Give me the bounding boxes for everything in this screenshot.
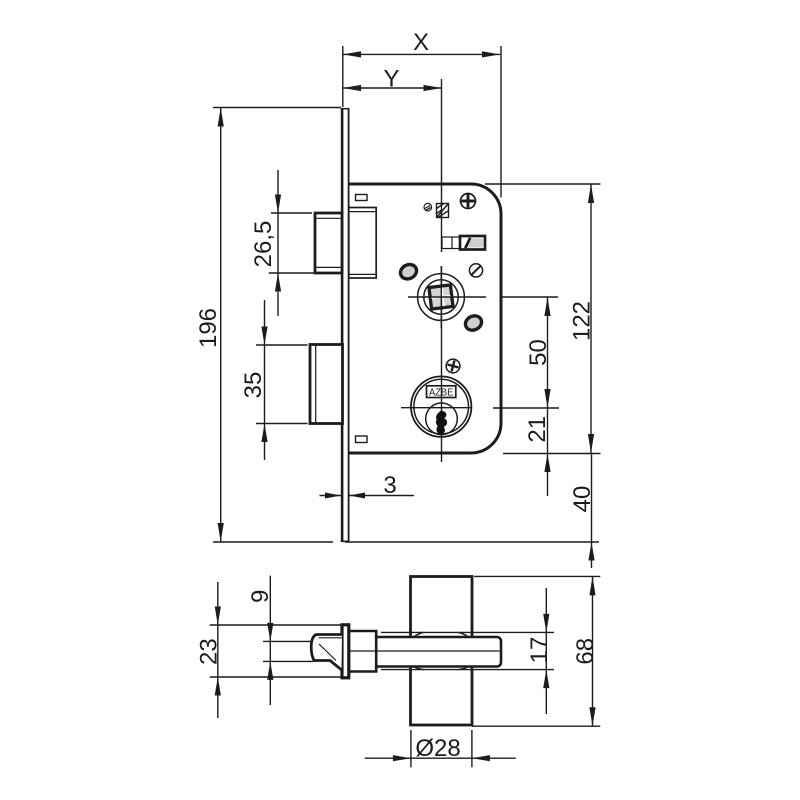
- svg-text:122: 122: [569, 301, 596, 341]
- svg-text:X: X: [413, 29, 429, 56]
- svg-text:35: 35: [240, 372, 267, 399]
- svg-text:40: 40: [569, 486, 596, 513]
- svg-text:23: 23: [195, 638, 222, 665]
- svg-text:17: 17: [526, 637, 553, 664]
- svg-text:26,5: 26,5: [250, 221, 277, 268]
- svg-text:68: 68: [572, 638, 599, 665]
- svg-text:9: 9: [247, 590, 274, 603]
- svg-text:Y: Y: [383, 66, 399, 93]
- svg-text:50: 50: [525, 339, 552, 366]
- svg-text:196: 196: [195, 308, 222, 348]
- svg-text:3: 3: [383, 472, 396, 499]
- svg-text:21: 21: [524, 416, 551, 443]
- svg-text:Ø28: Ø28: [415, 735, 460, 762]
